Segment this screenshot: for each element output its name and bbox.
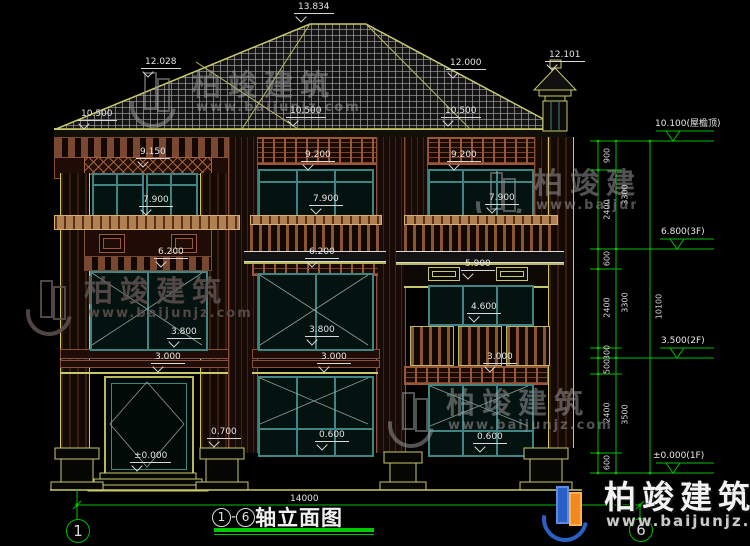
title-underline-thick [214,528,374,532]
brand-name: 柏竣建筑 [604,482,750,512]
watermark-right-lower: 柏竣建筑 www.baijunjz.com [388,388,613,433]
level-3000-left: 3.000 [151,352,185,364]
watermark-right-upper: 柏竣建筑 www.baijunjz.com [476,168,636,213]
band-3000-center [252,372,378,374]
mullion [116,175,118,217]
brand-url: www.baijunjz.com [606,512,750,530]
level-door: ±0.000 [130,451,171,463]
level-floor-left: 6.200 [154,247,188,259]
level-chimney: 12.101 [545,50,585,62]
level-3f: 6.800(3F) [661,227,705,237]
level-sill1f-right: 0.600 [473,432,507,444]
column-base [380,452,426,490]
parapet-dentil-left [84,256,212,271]
level-eave-mid: 10.500 [286,106,326,118]
level-band-right: 9.200 [447,150,481,162]
level-sill3f-mid: 7.900 [309,194,343,206]
elevation-drawing: 13.834 12.028 12.000 12.101 10.500 10.50… [0,0,750,546]
level-eave-left: 10.500 [77,109,117,121]
dim-2400: 2400 [603,192,612,228]
dim-3500: 3500 [621,397,630,433]
level-sill1f-mid: 0.600 [315,430,349,442]
level-floor-mid: 6.200 [305,247,339,259]
parapet-rail-left [54,215,240,230]
dim-600: 600 [603,445,612,481]
chimney [534,60,576,131]
level-plinth: 0.700 [207,427,241,439]
parapet-panel-left [84,229,212,258]
title-text: 轴立面图 [255,506,343,530]
column-base [51,448,103,490]
level-3000-mid: 3.000 [317,352,351,364]
level-band-left: 9.150 [136,147,170,159]
transom [94,184,142,186]
watermark-left: 柏竣建筑 www.baijunjz.com [26,276,253,321]
dim-2400: 2400 [603,290,612,326]
brand-logo: 柏竣建筑 www.baijunjz.com [542,482,750,530]
balcony-slats-right [404,224,556,252]
level-ridge: 13.834 [294,2,334,14]
level-2f: 3.500(2F) [661,336,705,346]
level-1f: ±0.000(1F) [653,451,704,461]
title-underline-thin [214,534,374,535]
dim-2400: 2400 [603,395,612,431]
level-eave-right: 10.500 [441,106,481,118]
band-center-2 [252,360,380,368]
balcony-rail-right [404,215,558,225]
title-axis-to: 6 [236,508,255,527]
brand-logo-mark [542,484,594,542]
band-3000-left [60,372,228,374]
level-hip-right: 12.000 [446,58,486,70]
dim-600: 600 [603,241,612,277]
level-3000-right: 3.000 [483,352,517,364]
dim-10100: 10100 [655,289,664,325]
level-sill2f-left: 3.800 [167,327,201,339]
dim-900: 900 [603,138,612,174]
watermark-logo [130,70,178,126]
level-band59-right: 5.900 [461,259,495,271]
dim-3300: 3300 [621,285,630,321]
level-sill2f-mid: 3.800 [305,325,339,337]
column-base [196,448,248,490]
title-axis-from: 1 [212,508,231,527]
balcony-rail-center [250,215,382,225]
level-sill2f-right: 4.600 [467,302,501,314]
dim-3300: 3300 [621,177,630,213]
band-left-2 [60,360,230,368]
axis-bubble-1: 1 [66,519,90,543]
window-3f-left-1 [92,173,144,219]
level-sill3f-right: 7.900 [485,193,519,205]
level-sill3f-left: 7.900 [139,195,173,207]
watermark-roof: 柏竣建筑 www.baijunjz.com [130,70,361,115]
level-roof-top: 10.100(屋檐顶) [655,119,721,129]
level-band-mid: 9.200 [301,150,335,162]
band-3000-right [404,366,558,385]
flower-box-right-1 [410,326,454,366]
level-hip-left: 12.028 [141,57,181,69]
dim-500: 500 [603,349,612,385]
